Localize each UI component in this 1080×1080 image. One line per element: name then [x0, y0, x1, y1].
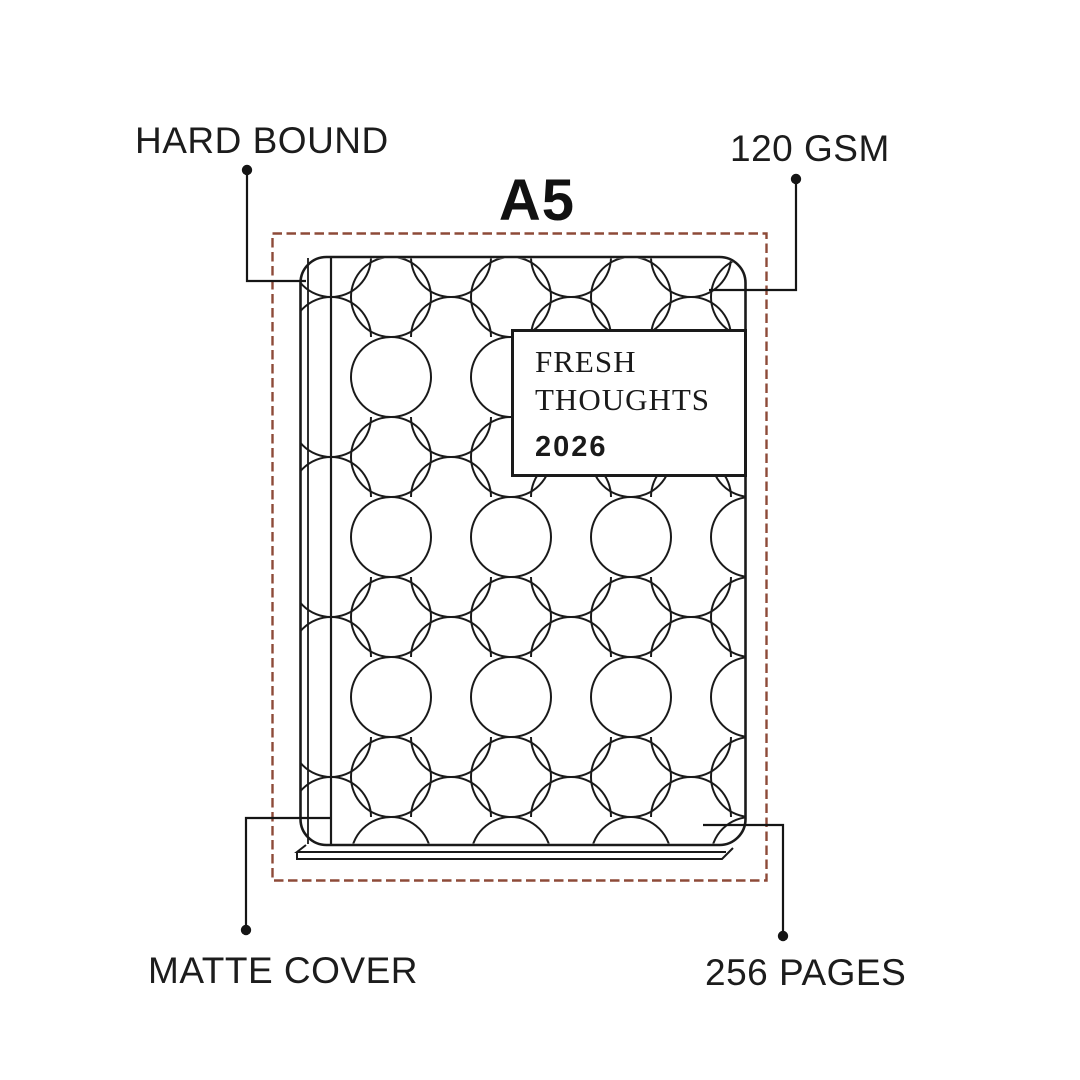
- matte-cover-dot: [241, 925, 251, 935]
- callout-hard-bound: HARD BOUND: [135, 122, 389, 159]
- cover-title-line2: THOUGHTS: [535, 381, 744, 419]
- callout-page-count: 256 PAGES: [705, 954, 906, 991]
- size-label: A5: [499, 172, 575, 230]
- cover-title-box: FRESH THOUGHTS 2026: [511, 329, 747, 477]
- page-block-bottom-edge: [297, 845, 733, 859]
- hard-bound-leader-line: [247, 170, 306, 281]
- hard-bound-dot: [242, 165, 252, 175]
- callout-matte-cover: MATTE COVER: [148, 952, 418, 989]
- cover-year: 2026: [535, 431, 744, 464]
- diagram-artwork: [0, 0, 1080, 1080]
- paper-weight-dot: [791, 174, 801, 184]
- page-count-dot: [778, 931, 788, 941]
- cover-title-line1: FRESH: [535, 343, 744, 381]
- notebook-spec-diagram: A5 HARD BOUND 120 GSM MATTE COVER 256 PA…: [0, 0, 1080, 1080]
- callout-paper-weight: 120 GSM: [730, 130, 890, 167]
